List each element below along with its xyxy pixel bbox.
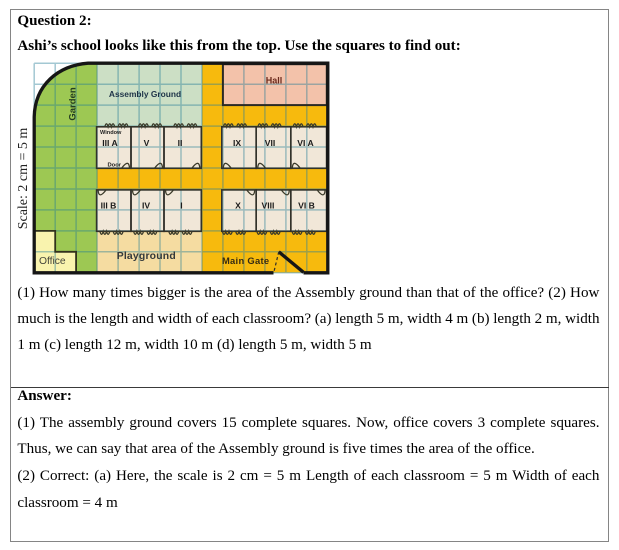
- svg-text:X: X: [235, 201, 241, 211]
- svg-text:Garden: Garden: [67, 87, 78, 120]
- svg-text:Assembly Ground: Assembly Ground: [109, 89, 181, 99]
- svg-text:Window: Window: [100, 130, 122, 136]
- svg-text:Hall: Hall: [266, 75, 283, 85]
- svg-text:II: II: [178, 138, 183, 148]
- svg-text:V: V: [144, 138, 150, 148]
- svg-text:IV: IV: [142, 201, 150, 211]
- svg-text:IX: IX: [233, 138, 241, 148]
- svg-text:Playground: Playground: [117, 251, 176, 262]
- svg-text:VI B: VI B: [298, 201, 315, 211]
- svg-text:Main Gate: Main Gate: [222, 255, 270, 266]
- svg-text:III B: III B: [101, 201, 117, 211]
- svg-text:VIII: VIII: [262, 201, 275, 211]
- svg-text:VI A: VI A: [297, 138, 313, 148]
- svg-text:III A: III A: [102, 138, 117, 148]
- svg-text:Scale: 2 cm = 5 m: Scale: 2 cm = 5 m: [16, 128, 31, 230]
- svg-text:I: I: [180, 201, 182, 211]
- svg-text:VII: VII: [265, 138, 276, 148]
- svg-text:Door: Door: [108, 163, 122, 169]
- svg-text:Office: Office: [39, 256, 66, 267]
